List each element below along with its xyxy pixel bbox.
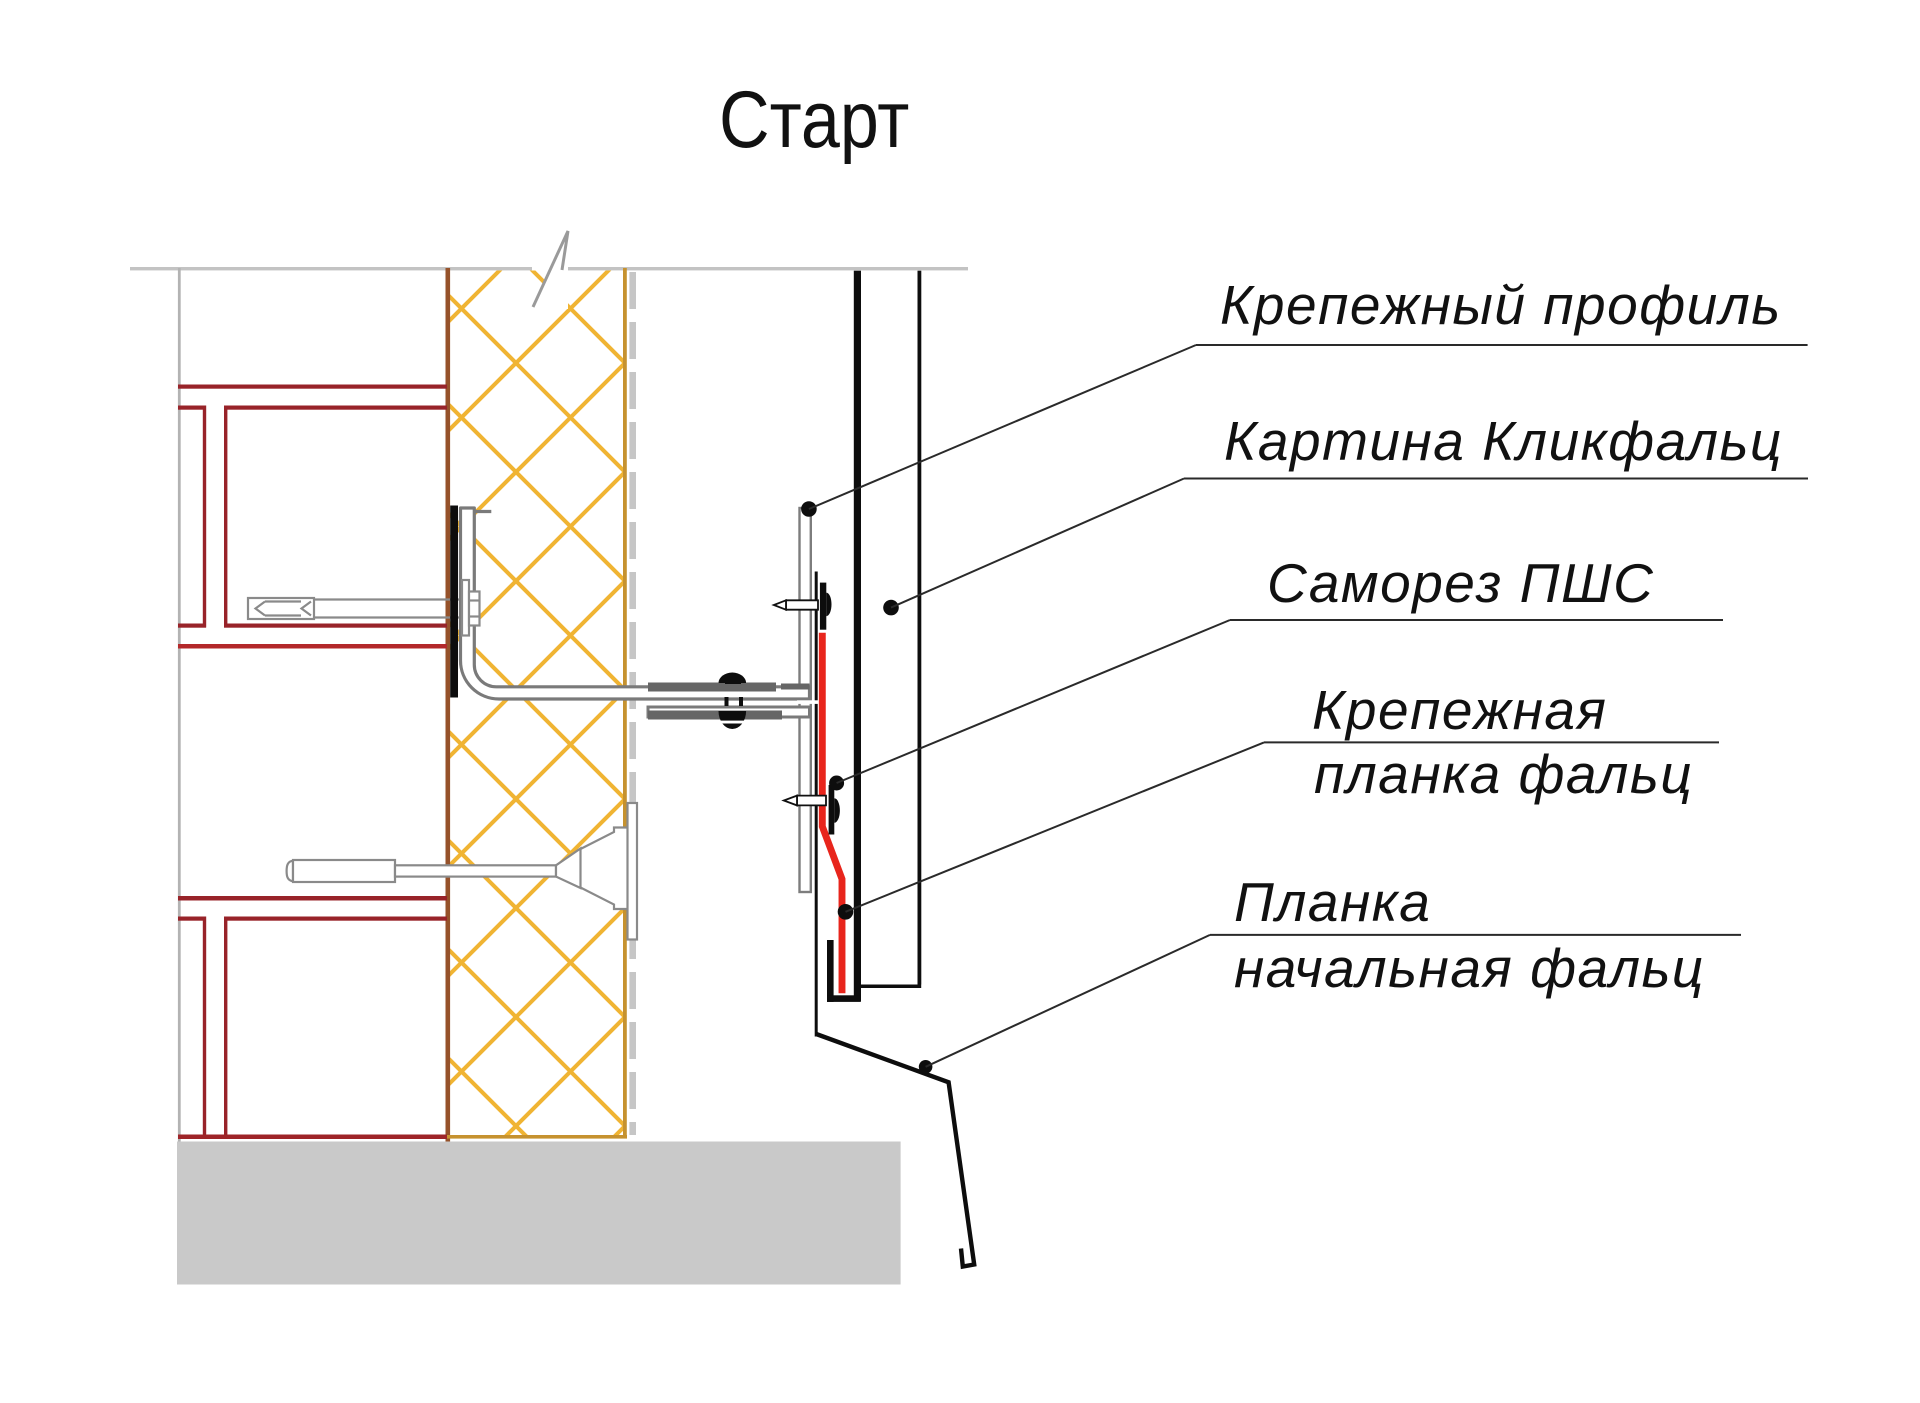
svg-text:Крепежная: Крепежная <box>1312 679 1607 741</box>
svg-text:Крепежный профиль: Крепежный профиль <box>1220 274 1782 336</box>
svg-text:Планка: Планка <box>1234 871 1431 933</box>
svg-text:планка фальц: планка фальц <box>1314 743 1693 805</box>
svg-text:начальная фальц: начальная фальц <box>1234 937 1705 999</box>
svg-text:Саморез ПШС: Саморез ПШС <box>1267 552 1654 614</box>
svg-text:Картина Кликфальц: Картина Кликфальц <box>1224 410 1783 472</box>
svg-text:Старт: Старт <box>719 74 909 165</box>
